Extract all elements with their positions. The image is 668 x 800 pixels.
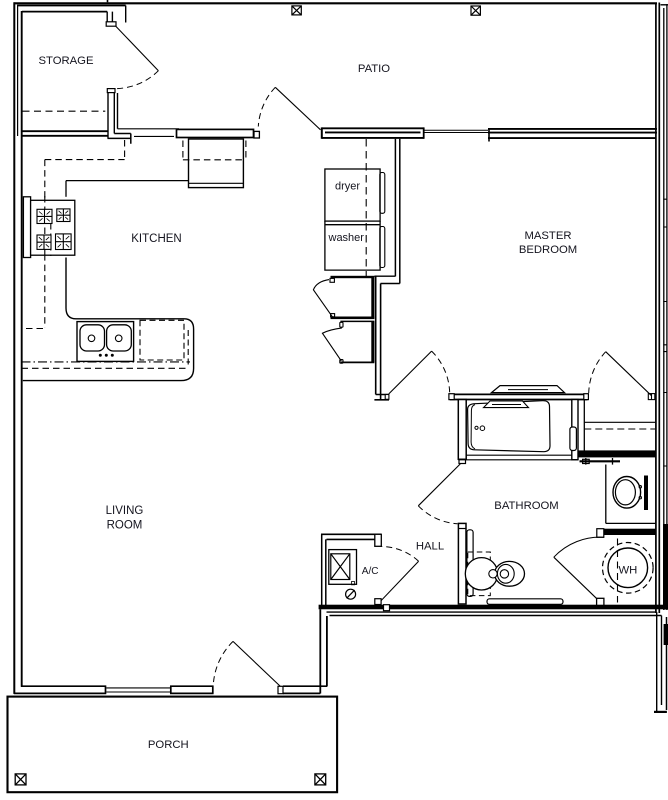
svg-text:LIVING: LIVING — [106, 505, 144, 517]
svg-text:STORAGE: STORAGE — [38, 55, 93, 67]
svg-text:BATHROOM: BATHROOM — [494, 500, 558, 512]
svg-text:dryer: dryer — [335, 181, 360, 193]
svg-text:WH: WH — [619, 564, 638, 576]
svg-text:A/C: A/C — [362, 566, 379, 577]
svg-text:washer: washer — [328, 232, 365, 244]
svg-text:KITCHEN: KITCHEN — [131, 233, 181, 245]
svg-text:ROOM: ROOM — [107, 520, 143, 532]
svg-text:MASTER: MASTER — [524, 230, 571, 242]
svg-text:HALL: HALL — [416, 541, 444, 553]
svg-text:PATIO: PATIO — [358, 63, 390, 75]
svg-text:BEDROOM: BEDROOM — [519, 244, 577, 256]
svg-text:PORCH: PORCH — [148, 739, 189, 751]
